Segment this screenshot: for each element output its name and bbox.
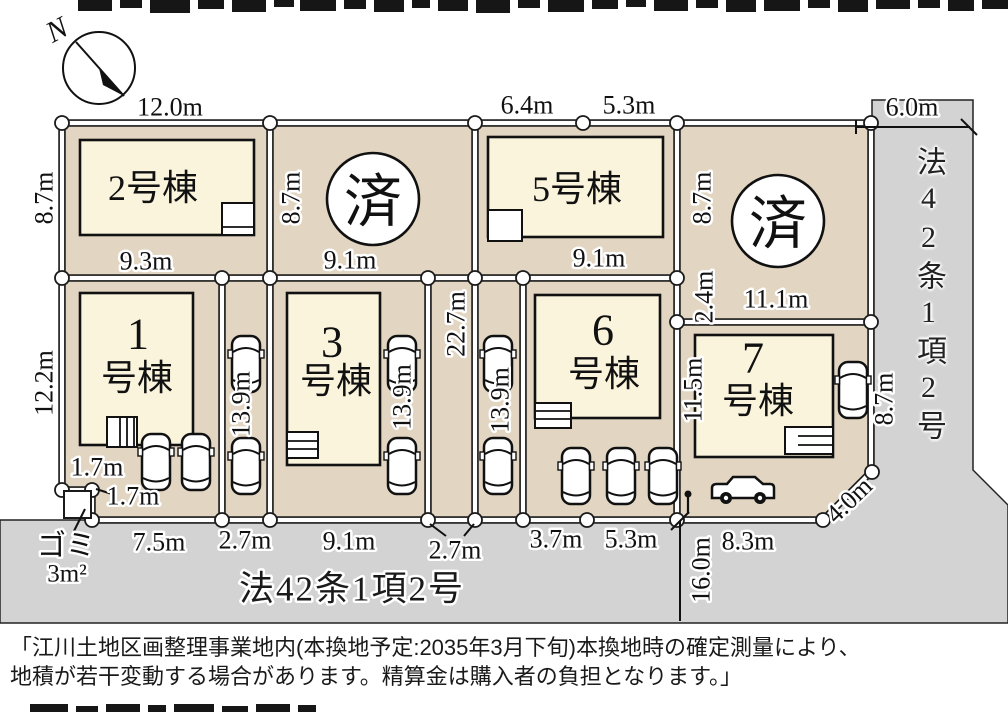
dim-lot8-left-lower: 2.4m <box>690 271 719 324</box>
label-lot2: 2号棟 <box>108 168 198 208</box>
car-top-icon <box>835 362 871 418</box>
sold-badge-text: 済 <box>749 192 807 257</box>
dim-lot4-bottom: 9.1m <box>324 246 377 275</box>
dim-block-depth: 22.7m <box>442 291 471 357</box>
dim-frontage-corridor: 2.7m <box>429 536 482 565</box>
waste-station-box <box>64 491 91 518</box>
dim-frontage-lot3: 9.1m <box>323 527 376 556</box>
waste-station-label: ゴミ <box>37 529 95 562</box>
car-top-icon <box>603 448 639 504</box>
dim-top-lot2: 12.0m <box>137 93 203 122</box>
label-lot6-num: 6 <box>592 306 614 355</box>
dim-right-road-width: 6.0m <box>886 93 939 122</box>
sold-badge-text: 済 <box>344 170 402 235</box>
dim-waste-height: 1.7m <box>107 482 160 511</box>
dim-lot8-left-upper: 8.7m <box>688 172 717 225</box>
dim-frontage-lot1: 7.5m <box>133 528 186 557</box>
cropped-text-bottom <box>30 704 316 712</box>
bottom-road-label: 法42条1項2号 <box>239 570 465 609</box>
dim-strip-mid: 13.9m <box>388 364 417 430</box>
dim-frontage-lot6-right: 5.3m <box>605 525 658 554</box>
dim-lot2-bottom: 9.3m <box>120 247 173 276</box>
car-top-icon <box>558 448 594 504</box>
dim-lot1-left: 12.2m <box>30 350 59 416</box>
dim-lot6-top: 9.1m <box>573 244 626 273</box>
site-plan-page: 済 済 12.0m 6.4m 5.3m 6.0m 8.7m 9.3m 8.7m … <box>0 0 1008 712</box>
label-lot6-name: 号棟 <box>568 354 640 394</box>
label-lot7-num: 7 <box>742 334 764 383</box>
disclaimer-note: 「江川土地区画整理事業地内(本換地予定:2035年3月下旬)本換地時の確定測量に… <box>10 633 1002 691</box>
compass-icon: N <box>40 10 135 104</box>
cropped-text-top <box>78 0 1008 13</box>
disclaimer-line1: 「江川土地区画整理事業地内(本換地予定:2035年3月下旬)本換地時の確定測量に… <box>10 633 1002 662</box>
dim-lot8-bottom: 11.1m <box>744 285 809 314</box>
site-plan-drawing: 済 済 12.0m 6.4m 5.3m 6.0m 8.7m 9.3m 8.7m … <box>0 0 1008 712</box>
right-road-label: 法42条1項2号 <box>912 146 950 446</box>
car-top-icon <box>645 448 681 504</box>
dim-top-lot5-right: 5.3m <box>603 91 656 120</box>
dim-top-lot5-left: 6.4m <box>501 91 554 120</box>
dim-frontage-strip1: 2.7m <box>219 526 272 555</box>
dim-road-length: 16.0m <box>687 537 716 603</box>
car-top-icon <box>480 438 516 494</box>
dim-waste-width: 1.7m <box>71 453 124 482</box>
dim-strip-left: 13.9m <box>227 371 256 437</box>
dim-lot7-right: 8.7m <box>870 373 899 426</box>
dim-lot7-left: 11.5m <box>679 358 708 423</box>
waste-station-area: 3m² <box>47 561 86 588</box>
sold-badge-lot4: 済 <box>327 153 419 245</box>
dim-lot4-left: 8.7m <box>277 172 306 225</box>
dim-lot2-left: 8.7m <box>30 172 59 225</box>
label-lot1-name: 号棟 <box>101 358 173 398</box>
label-lot7-name: 号棟 <box>722 381 794 421</box>
dim-strip-right: 13.9m <box>486 367 515 433</box>
compass-north-label: N <box>40 10 76 50</box>
label-lot3-name: 号棟 <box>300 361 372 401</box>
sold-badge-lot8: 済 <box>732 175 824 267</box>
label-lot5: 5号棟 <box>532 169 622 209</box>
dim-frontage-lot6-left: 3.7m <box>530 525 583 554</box>
car-top-icon <box>178 434 214 490</box>
label-lot3-num: 3 <box>321 318 343 367</box>
car-top-icon <box>384 438 420 494</box>
disclaimer-line2: 地積が若干変動する場合があります。精算金は購入者の負担となります。」 <box>10 662 1002 691</box>
car-top-icon <box>228 438 264 494</box>
label-lot1-num: 1 <box>127 310 149 359</box>
dim-frontage-lot7: 8.3m <box>722 527 775 556</box>
